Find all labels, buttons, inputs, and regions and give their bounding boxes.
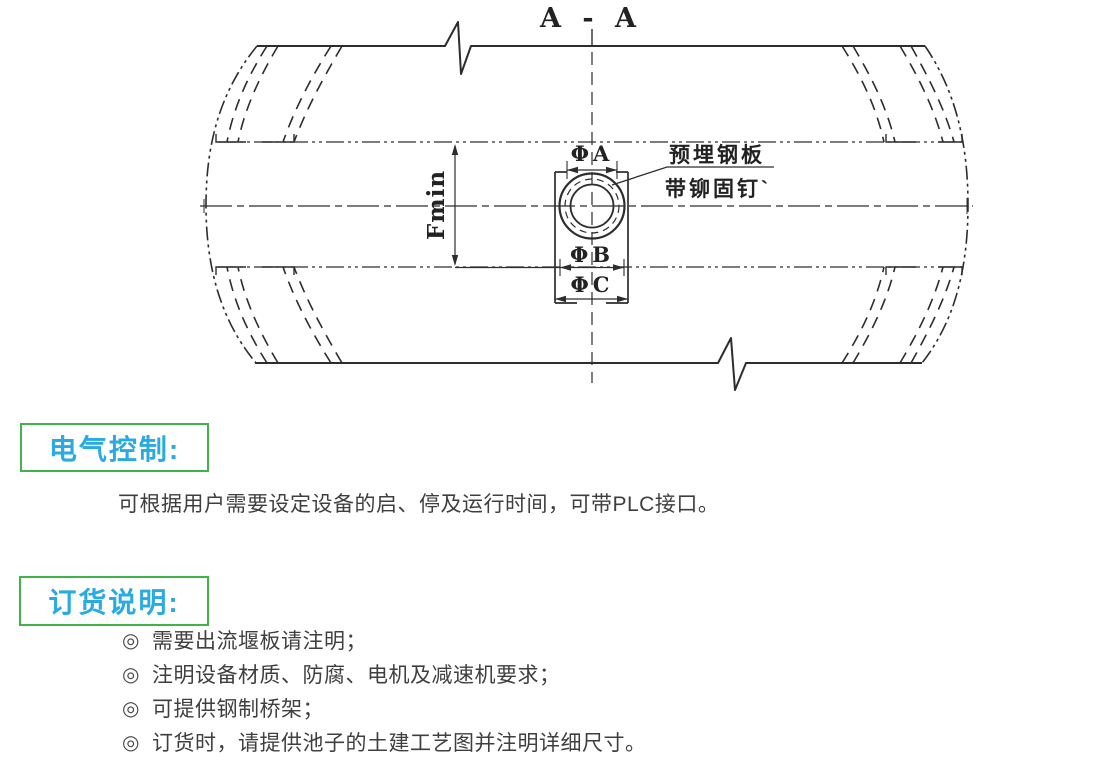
list-item: ◎ 可提供钢制桥架； (122, 699, 842, 720)
bullseye-bullet-icon: ◎ (122, 665, 140, 686)
tank-end-outer-arcs (206, 46, 968, 363)
dim-label-phi-c: ΦC (570, 272, 613, 297)
dim-label-phi-b: ΦB (570, 242, 614, 267)
bullseye-bullet-icon: ◎ (122, 699, 140, 720)
dim-label-phi-a: ΦA (571, 141, 614, 166)
list-item: ◎ 订货时，请提供池子的土建工艺图并注明详细尺寸。 (122, 733, 842, 754)
list-item-text: 可提供钢制桥架； (152, 699, 324, 720)
dimension-fmin: Fmin (423, 144, 458, 266)
list-item: ◎ 需要出流堰板请注明； (122, 631, 842, 652)
tank-end-inner-curves (227, 46, 954, 363)
electrical-control-heading-box: 电气控制: (20, 423, 209, 472)
list-item-text: 需要出流堰板请注明； (152, 631, 367, 652)
center-lines (200, 29, 973, 383)
bullseye-bullet-icon: ◎ (122, 631, 140, 652)
ordering-instructions-list: ◎ 需要出流堰板请注明； ◎ 注明设备材质、防腐、电机及减速机要求； ◎ 可提供… (122, 631, 842, 766)
electrical-control-heading: 电气控制: (49, 428, 180, 468)
list-item-text: 订货时，请提供池子的土建工艺图并注明详细尺寸。 (152, 733, 647, 754)
section-view-label: A - A (539, 3, 642, 34)
ordering-instructions-heading-box: 订货说明: (19, 576, 209, 626)
electrical-control-body: 可根据用户需要设定设备的启、停及运行时间，可带PLC接口。 (118, 488, 719, 518)
bullseye-bullet-icon: ◎ (122, 733, 140, 754)
catalog-page: A - A (0, 0, 1103, 766)
list-item: ◎ 注明设备材质、防腐、电机及减速机要求； (122, 665, 842, 686)
dim-label-fmin: Fmin (423, 170, 450, 240)
callout-line1: 预埋钢板 (669, 143, 765, 167)
list-item-text: 注明设备材质、防腐、电机及减速机要求； (152, 665, 561, 686)
ordering-instructions-heading: 订货说明: (48, 581, 179, 621)
technical-drawing-section-aa: A - A (0, 0, 1103, 420)
callout-line2: 带铆固钉` (665, 177, 771, 201)
callout-embedded-plate: 预埋钢板 带铆固钉` (612, 143, 774, 201)
dimension-phi-b: ΦB (455, 242, 624, 276)
